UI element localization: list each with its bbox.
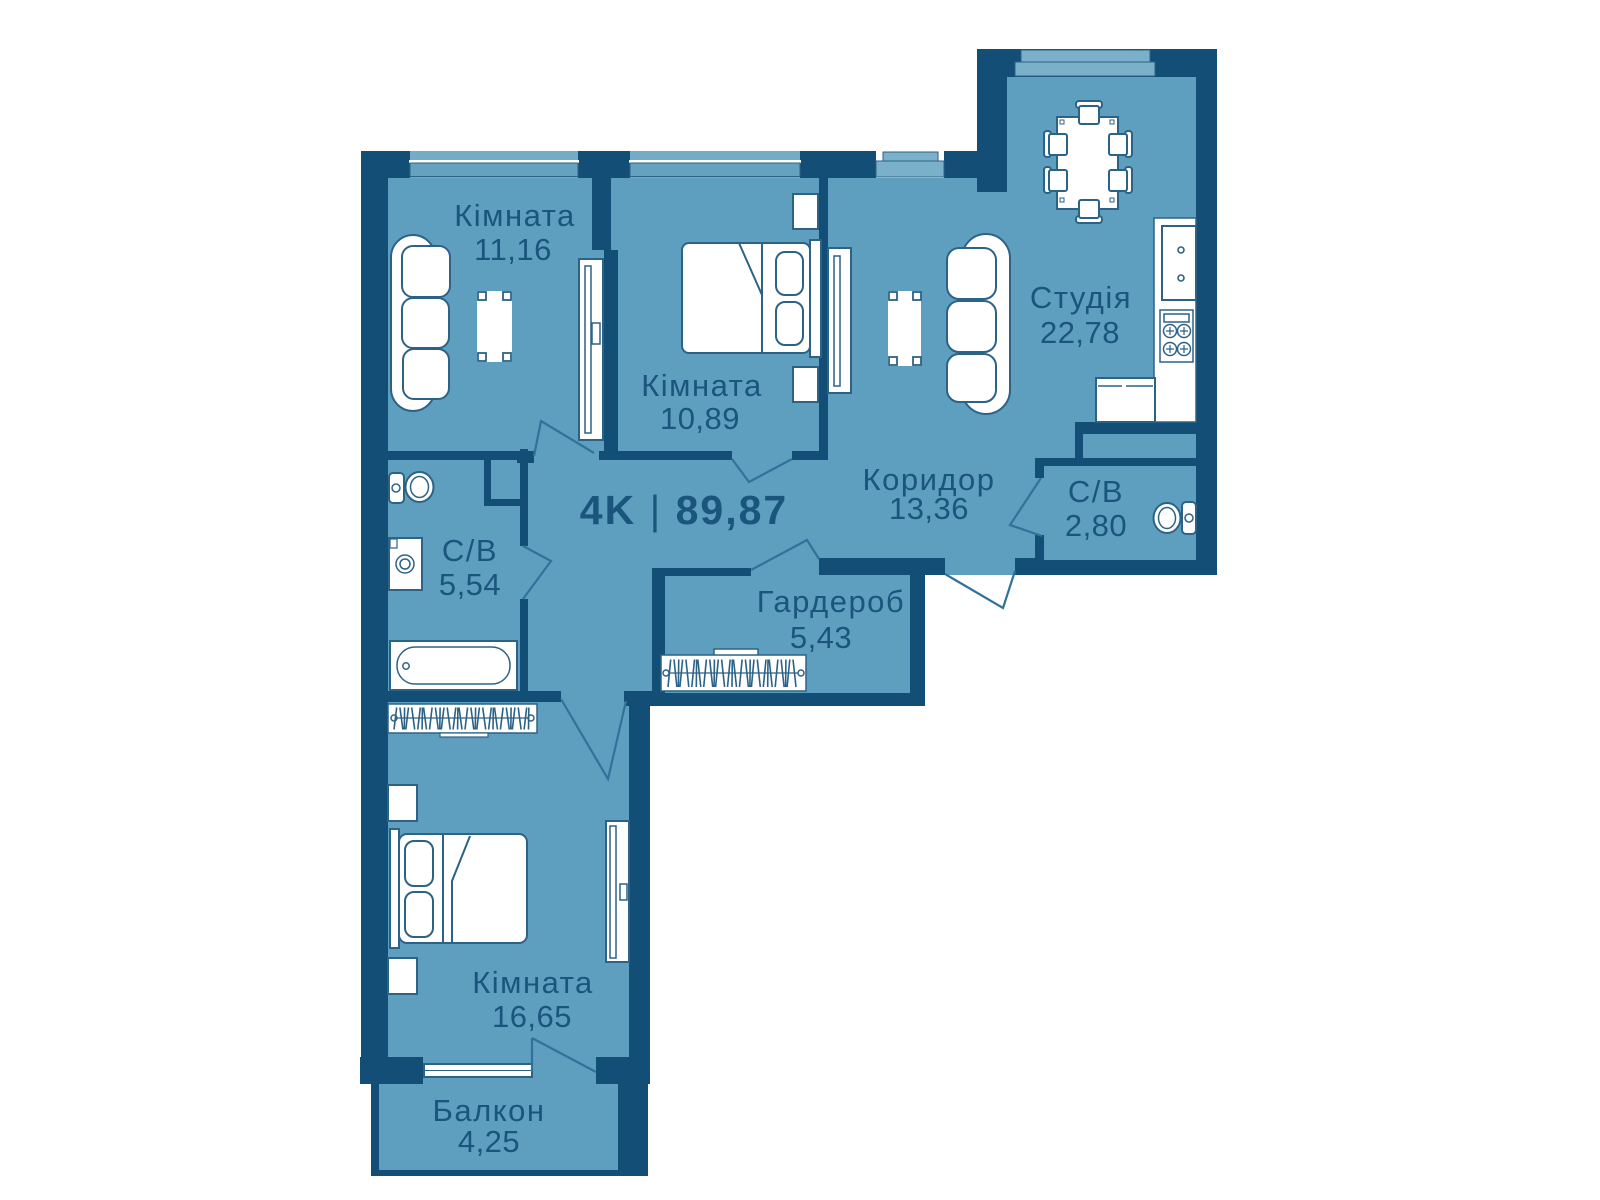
svg-text:Гардероб: Гардероб [757,584,905,619]
svg-text:4K | 89,87: 4K | 89,87 [580,487,788,533]
svg-text:С/В: С/В [1068,474,1124,509]
svg-text:Студія: Студія [1030,280,1132,315]
svg-text:5,54: 5,54 [439,567,501,602]
svg-text:2,80: 2,80 [1065,508,1127,543]
svg-text:С/В: С/В [442,533,498,568]
svg-text:13,36: 13,36 [889,491,969,526]
svg-text:11,16: 11,16 [474,232,552,267]
svg-text:Балкон: Балкон [433,1093,546,1128]
svg-text:5,43: 5,43 [790,620,852,655]
svg-text:22,78: 22,78 [1040,315,1120,350]
svg-text:16,65: 16,65 [492,999,572,1034]
svg-text:Кімната: Кімната [641,368,763,403]
svg-text:10,89: 10,89 [660,401,740,436]
svg-text:Кімната: Кімната [472,965,594,1000]
svg-text:Кімната: Кімната [454,198,576,233]
svg-text:4,25: 4,25 [458,1124,520,1159]
